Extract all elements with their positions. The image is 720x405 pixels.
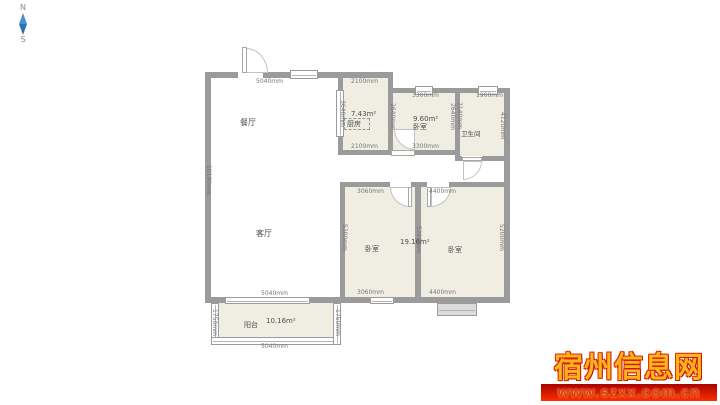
kitchen-label: 厨房: [347, 120, 361, 129]
living-room-label: 客厅: [256, 229, 272, 238]
compass-south-label: S: [10, 35, 36, 45]
wall-segment: [449, 182, 510, 187]
dim-label: 5200mm: [498, 224, 505, 251]
entry-door-arc: [246, 48, 268, 73]
compass-south-arrow-icon: [19, 24, 27, 35]
dim-label: 3060mm: [357, 289, 384, 296]
dim-label: 2140mm: [456, 102, 463, 129]
dim-label: 5200mm: [415, 226, 422, 253]
watermark-site-name: 宿州信息网: [541, 352, 717, 383]
bedroom-top-area-label: 9.60m²: [413, 115, 438, 123]
window: [370, 297, 394, 304]
bedroom-left-label: 卧室: [365, 245, 379, 254]
dim-label: 2100mm: [351, 78, 378, 85]
compass: N S: [10, 3, 36, 45]
compass-north-arrow-icon: [19, 13, 27, 24]
window: [290, 70, 318, 79]
dim-label: 5040mm: [261, 290, 288, 297]
bedroom-left-door-leaf: [408, 187, 412, 207]
balcony-sliding-door: [225, 297, 310, 304]
dim-label: 4400mm: [429, 289, 456, 296]
bathroom-label: 卫生间: [461, 130, 481, 139]
wall-segment: [455, 156, 462, 161]
balcony-label: 阳台: [244, 321, 258, 330]
kitchen-area-label: 7.43m²: [351, 110, 376, 118]
wall-segment: [345, 182, 390, 187]
dim-label: 5200mm: [341, 224, 348, 251]
wall-segment: [415, 150, 455, 155]
wall-segment: [310, 297, 372, 303]
bedroom-top-door-leaf: [391, 150, 415, 156]
watermark-site-url: www.szxx.com.cn: [541, 384, 717, 401]
dim-label: 4120mm: [499, 112, 506, 139]
dim-label: 2100mm: [351, 143, 378, 150]
dim-label: 2640mm: [389, 103, 396, 130]
dim-label: 10190mm: [205, 165, 212, 196]
dim-label: 3640mm: [339, 100, 346, 127]
wall-segment: [482, 156, 504, 161]
dim-label: 5040mm: [261, 343, 288, 350]
bathroom-door-arc: [463, 161, 482, 180]
dim-label: 3300mm: [412, 143, 439, 150]
dim-label: 5040mm: [256, 78, 283, 85]
dim-label: 1750mm: [334, 309, 341, 336]
entry-door-leaf: [242, 47, 247, 73]
floorplan-page: N S 餐: [0, 0, 720, 405]
wall-segment: [343, 150, 391, 155]
bedroom-right-label: 卧室: [448, 246, 462, 255]
dim-label: 3060mm: [357, 188, 384, 195]
watermark: 宿州信息网 www.szxx.com.cn: [541, 352, 717, 401]
dim-label: 4400mm: [429, 188, 456, 195]
bay-window: [437, 303, 477, 316]
dim-label: 2640mm: [449, 103, 456, 130]
dim-label: 1750mm: [211, 309, 218, 336]
dim-label: 1900mm: [476, 92, 503, 99]
dining-room-label: 餐厅: [240, 118, 256, 127]
bathroom-floor: [460, 93, 504, 156]
compass-north-label: N: [10, 3, 36, 13]
bathroom-door-leaf: [462, 157, 482, 161]
balcony-area-label: 10.16m²: [266, 317, 296, 325]
bedroom-top-label: 卧室: [413, 123, 427, 132]
dim-label: 3300mm: [412, 92, 439, 99]
